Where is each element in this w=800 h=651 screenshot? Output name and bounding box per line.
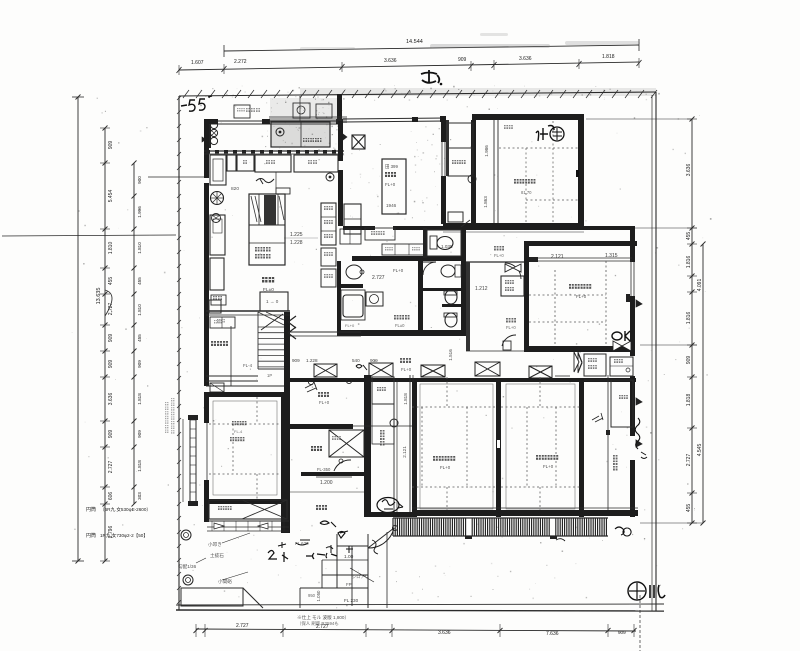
svg-text:909: 909 <box>108 141 114 150</box>
svg-text:2.727: 2.727 <box>372 275 385 281</box>
svg-text:909: 909 <box>108 334 114 343</box>
svg-text:1.996: 1.996 <box>137 206 142 218</box>
svg-text:2.727: 2.727 <box>108 461 114 474</box>
svg-text:FL 230: FL 230 <box>344 598 359 603</box>
svg-text:3.636: 3.636 <box>438 630 451 636</box>
svg-text:FL+0: FL+0 <box>319 400 330 405</box>
svg-text:FP: FP <box>346 582 352 587</box>
svg-text:1.225: 1.225 <box>290 232 303 238</box>
svg-text:FL 630: FL 630 <box>295 541 309 546</box>
svg-text:1.818: 1.818 <box>137 393 142 405</box>
svg-text:土抜石: 土抜石 <box>210 552 224 559</box>
svg-text:7.636: 7.636 <box>546 631 559 637</box>
svg-text:FL-4: FL-4 <box>234 429 243 434</box>
svg-text:303: 303 <box>137 492 142 500</box>
svg-text:1.986: 1.986 <box>484 145 489 157</box>
svg-text:FL±0: FL±0 <box>263 287 274 293</box>
svg-text:950: 950 <box>308 593 316 598</box>
svg-text:1.816: 1.816 <box>686 312 692 325</box>
svg-text:1.516: 1.516 <box>448 349 453 361</box>
svg-text:3.636: 3.636 <box>384 58 397 64</box>
svg-text:909: 909 <box>618 630 626 635</box>
svg-text:1P: 1P <box>267 373 272 378</box>
svg-text:FL+0: FL+0 <box>401 367 412 372</box>
svg-text:FL+0: FL+0 <box>543 464 554 469</box>
svg-text:5.454: 5.454 <box>108 190 114 203</box>
svg-text:909: 909 <box>686 356 692 365</box>
svg-text:FL-350: FL-350 <box>317 467 331 472</box>
svg-text:1.200: 1.200 <box>320 480 333 486</box>
svg-text:1.212: 1.212 <box>475 286 488 292</box>
svg-text:14.544: 14.544 <box>406 39 423 45</box>
svg-text:1.863: 1.863 <box>483 196 488 208</box>
svg-text:3.636: 3.636 <box>519 56 532 62</box>
svg-text:1.818: 1.818 <box>137 460 142 472</box>
svg-text:4.091: 4.091 <box>697 279 703 292</box>
svg-text:1.816: 1.816 <box>686 256 692 269</box>
svg-text:2.727: 2.727 <box>686 454 692 467</box>
svg-text:※仕上 モル 波版 1,800）: ※仕上 モル 波版 1,800） <box>297 614 349 621</box>
svg-text:606: 606 <box>108 492 114 501</box>
svg-text:1R九.女730φ2-2【50】: 1R九.女730φ2-2【50】 <box>100 532 148 539</box>
svg-text:1.315: 1.315 <box>605 253 618 259</box>
svg-text:909: 909 <box>137 430 142 438</box>
svg-text:13.635: 13.635 <box>96 288 102 305</box>
svg-text:1.00: 1.00 <box>344 554 354 560</box>
svg-text:2.121: 2.121 <box>402 446 407 458</box>
svg-text:FL+0: FL+0 <box>440 465 451 470</box>
svg-text:1.050: 1.050 <box>316 590 321 602</box>
svg-text:1 → 0: 1 → 0 <box>266 299 279 304</box>
svg-text:455: 455 <box>686 232 692 241</box>
svg-text:1.810: 1.810 <box>137 242 142 254</box>
svg-text:909: 909 <box>458 57 467 63</box>
svg-text:小叩き: 小叩き <box>208 541 222 548</box>
svg-text:909: 909 <box>292 358 300 363</box>
svg-text:4.545: 4.545 <box>697 444 703 457</box>
svg-text:820: 820 <box>231 186 239 192</box>
svg-text:455: 455 <box>108 277 114 286</box>
svg-text:勾配1/36: 勾配1/36 <box>178 563 197 570</box>
svg-text:81.70: 81.70 <box>521 190 532 195</box>
svg-text:FL-4: FL-4 <box>243 363 253 368</box>
svg-text:1.818: 1.818 <box>602 54 615 60</box>
svg-text:1.228: 1.228 <box>306 358 318 363</box>
svg-text:FL+0: FL+0 <box>494 253 504 258</box>
svg-text:909: 909 <box>137 360 142 368</box>
svg-text:FL+0: FL+0 <box>506 325 516 330</box>
svg-text:1946: 1946 <box>386 203 397 208</box>
svg-text:3.636: 3.636 <box>108 393 114 406</box>
svg-text:1.810: 1.810 <box>108 242 114 255</box>
svg-text:1.818: 1.818 <box>403 393 408 405</box>
svg-text:1.228: 1.228 <box>290 240 303 246</box>
svg-text:455: 455 <box>137 277 142 285</box>
svg-text:（6R九.女530φE-2600）: （6R九.女530φE-2600） <box>100 506 151 513</box>
svg-text:900: 900 <box>137 176 142 184</box>
svg-text:909: 909 <box>108 360 114 369</box>
svg-text:1.818: 1.818 <box>686 394 692 407</box>
svg-text:1.607: 1.607 <box>191 60 204 66</box>
svg-text:909: 909 <box>370 358 378 363</box>
svg-text:円筒: 円筒 <box>86 532 96 539</box>
svg-text:455: 455 <box>686 504 692 513</box>
svg-text:3.636: 3.636 <box>686 164 692 177</box>
svg-text:円筒: 円筒 <box>86 506 96 513</box>
svg-text:2.121: 2.121 <box>551 254 564 260</box>
svg-text:FL+0: FL+0 <box>385 182 396 187</box>
svg-text:FL+0: FL+0 <box>576 294 587 299</box>
svg-text:909: 909 <box>108 430 114 439</box>
svg-text:1.035: 1.035 <box>441 244 453 249</box>
svg-text:2.727: 2.727 <box>236 623 249 629</box>
svg-text:FL±0: FL±0 <box>395 323 405 328</box>
svg-text:FL+0: FL+0 <box>393 268 404 273</box>
svg-text:1.810: 1.810 <box>137 304 142 316</box>
svg-text:2.272: 2.272 <box>234 59 247 65</box>
svg-text:455: 455 <box>137 334 142 342</box>
svg-text:（保人 刷版 R2594も: （保人 刷版 R2594も <box>297 620 339 627</box>
svg-text:540: 540 <box>352 358 360 363</box>
svg-text:FL+0: FL+0 <box>345 323 355 328</box>
